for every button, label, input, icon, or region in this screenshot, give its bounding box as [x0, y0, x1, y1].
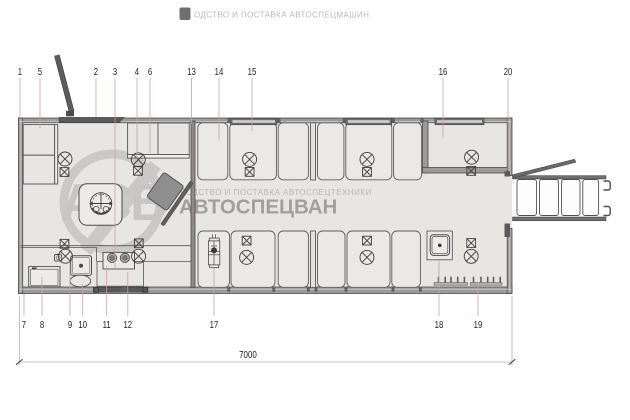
svg-text:13: 13	[187, 66, 196, 77]
svg-text:17: 17	[210, 319, 219, 330]
svg-text:8: 8	[40, 319, 44, 330]
svg-text:ОДСТВО И ПОСТАВКА АВТОСПЕЦМАШИ: ОДСТВО И ПОСТАВКА АВТОСПЕЦМАШИН	[194, 11, 369, 20]
svg-text:4: 4	[135, 66, 139, 77]
svg-text:7000: 7000	[239, 349, 257, 360]
svg-text:10: 10	[78, 319, 87, 330]
svg-text:15: 15	[248, 66, 257, 77]
svg-text:19: 19	[474, 319, 483, 330]
svg-text:12: 12	[123, 319, 132, 330]
svg-text:18: 18	[435, 319, 444, 330]
svg-text:3: 3	[113, 66, 117, 77]
svg-text:АВТОСПЕЦВАН: АВТОСПЕЦВАН	[179, 196, 337, 219]
svg-text:1: 1	[18, 66, 22, 77]
svg-text:6: 6	[148, 66, 152, 77]
svg-text:7: 7	[22, 319, 26, 330]
svg-text:2: 2	[94, 66, 98, 77]
svg-text:5: 5	[38, 66, 42, 77]
svg-text:9: 9	[68, 319, 72, 330]
svg-text:11: 11	[103, 319, 111, 330]
svg-text:20: 20	[504, 66, 513, 77]
svg-text:14: 14	[215, 66, 224, 77]
svg-text:16: 16	[439, 66, 448, 77]
